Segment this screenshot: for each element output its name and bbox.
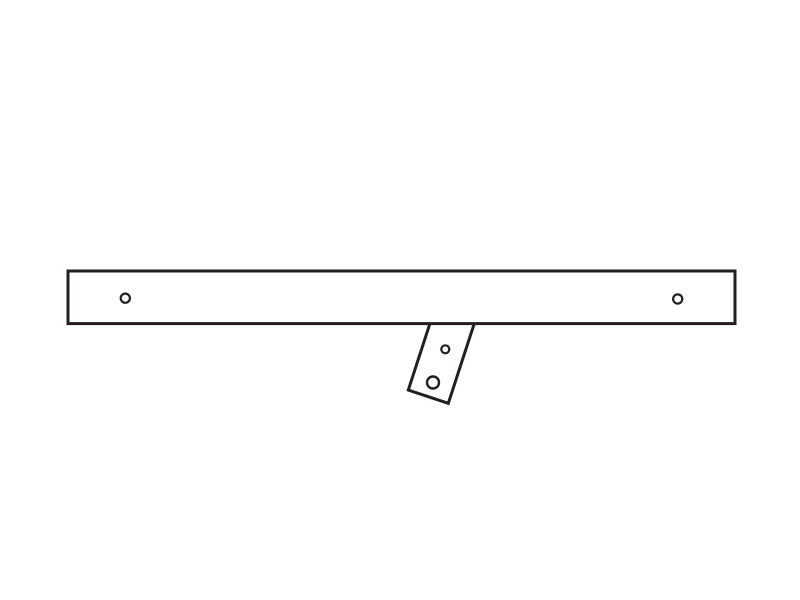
part-diagram bbox=[0, 0, 800, 600]
right-end-hole bbox=[673, 294, 682, 303]
main-bar bbox=[68, 271, 735, 324]
left-end-hole bbox=[121, 294, 130, 303]
tab-upper-hole bbox=[441, 345, 449, 353]
diagram-canvas bbox=[0, 0, 800, 600]
tab-lower-hole bbox=[427, 377, 439, 389]
